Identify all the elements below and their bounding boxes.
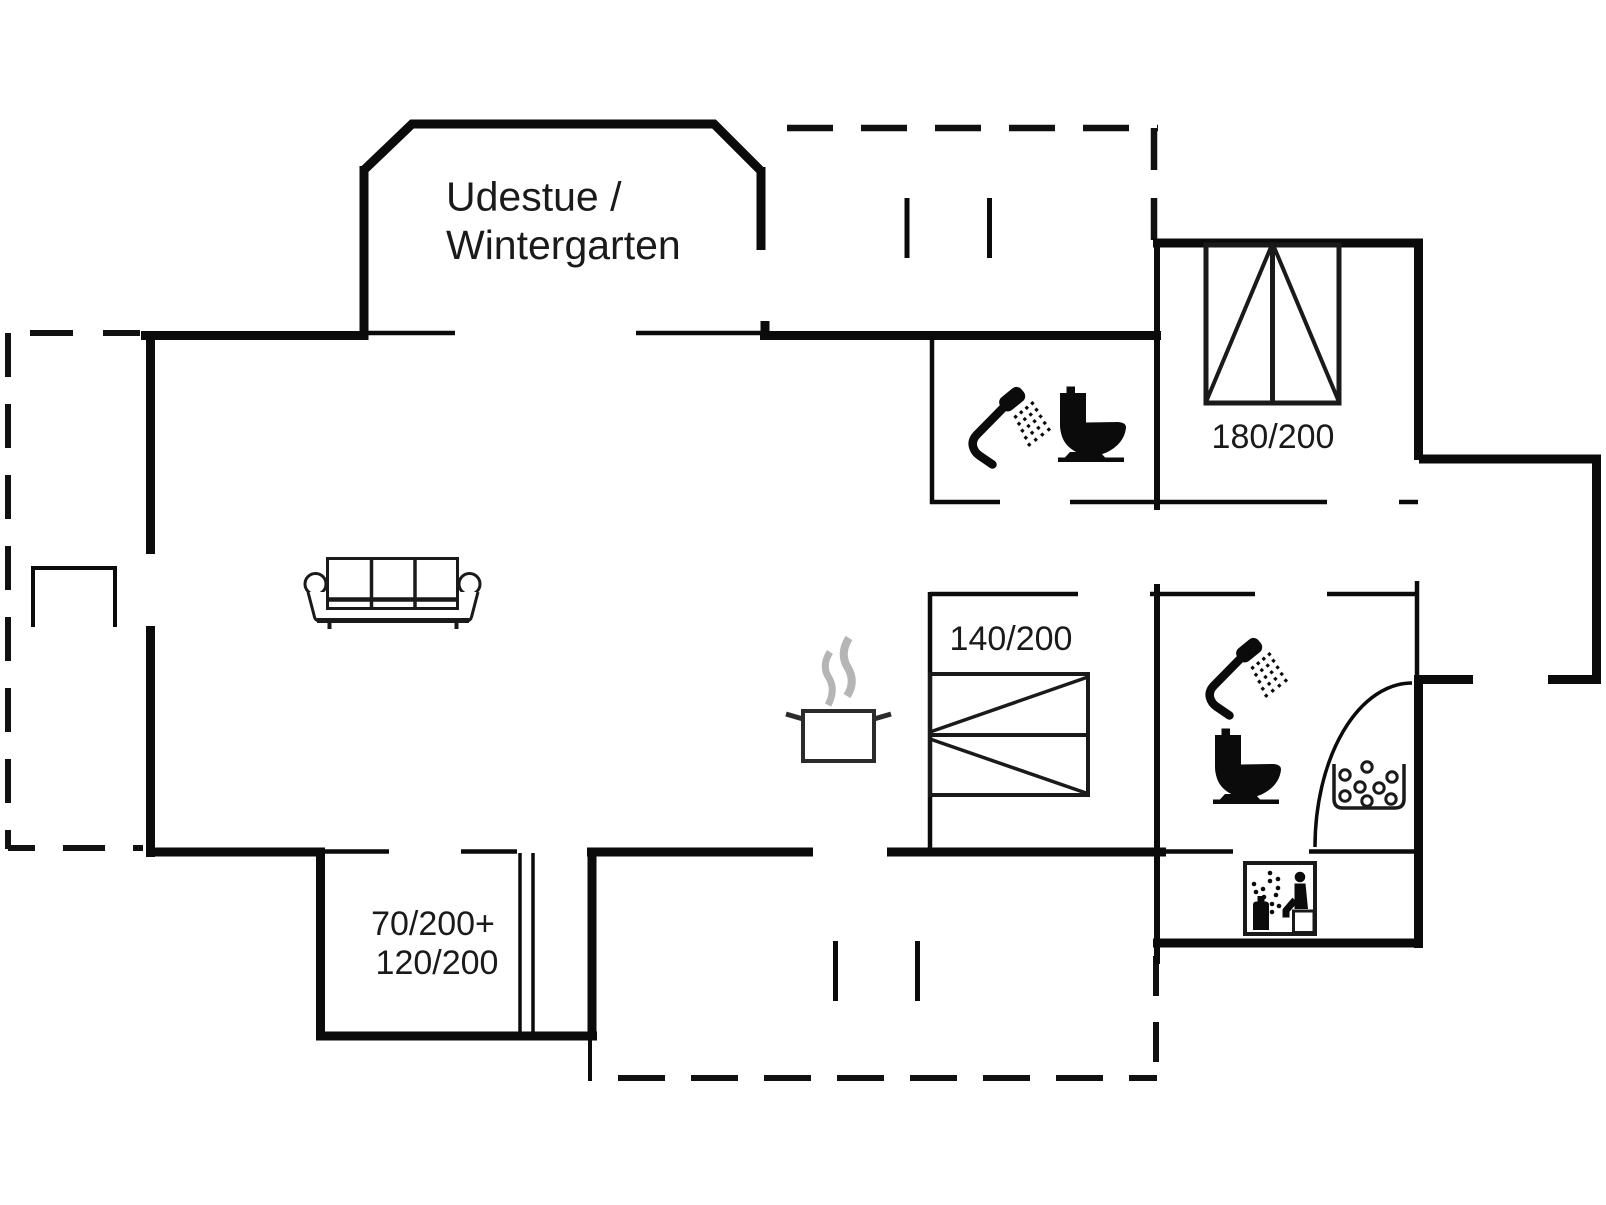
- svg-text:120/200: 120/200: [376, 944, 499, 982]
- svg-text:140/200: 140/200: [950, 620, 1073, 658]
- svg-text:180/200: 180/200: [1212, 418, 1335, 456]
- svg-text:Udestue /: Udestue /: [446, 174, 622, 220]
- svg-text:Wintergarten: Wintergarten: [446, 222, 681, 268]
- svg-text:70/200+: 70/200+: [371, 905, 495, 943]
